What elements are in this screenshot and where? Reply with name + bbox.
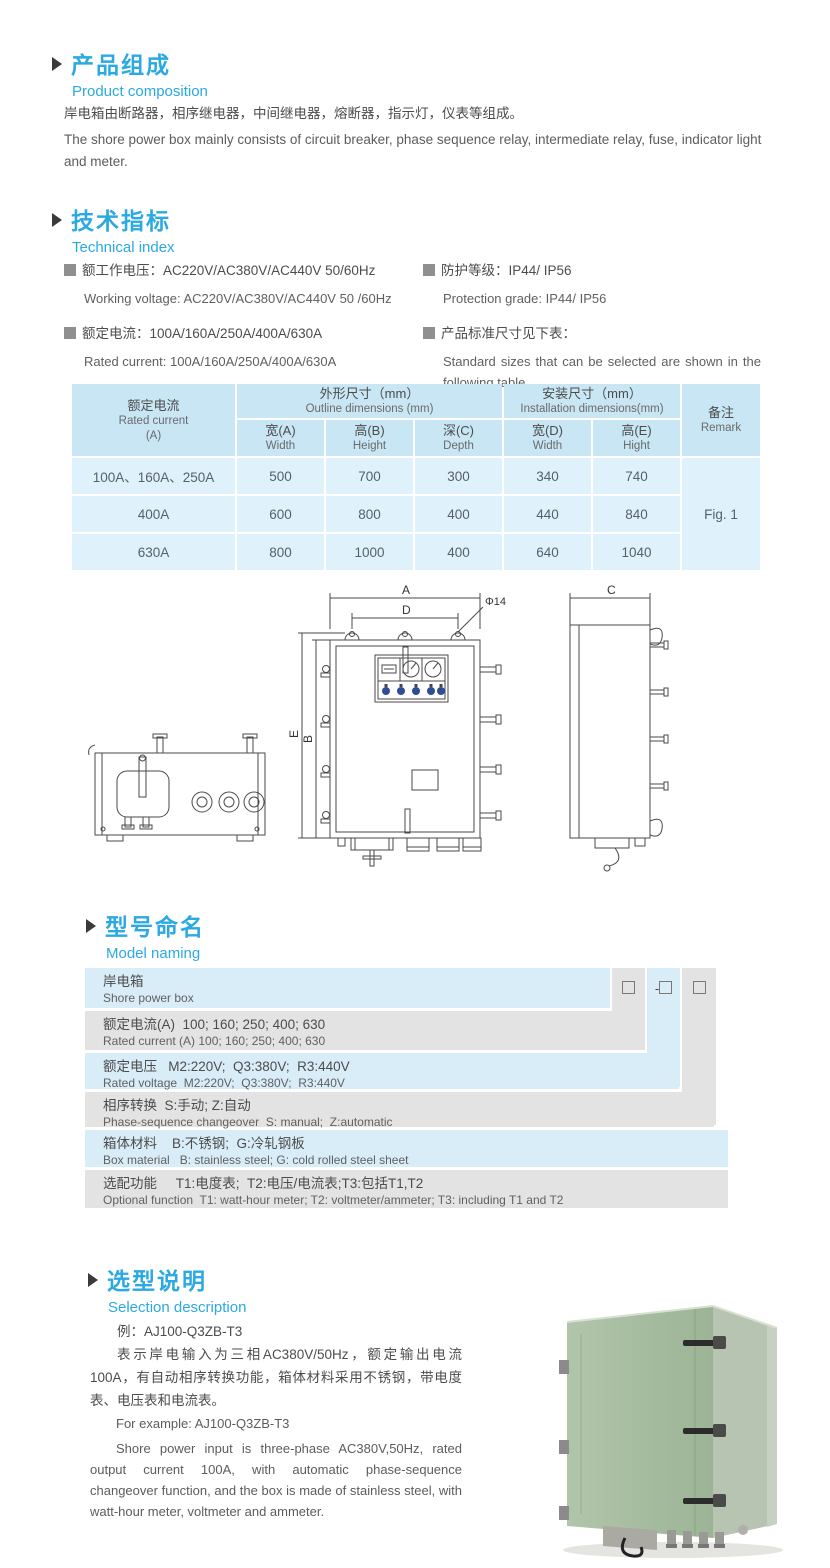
naming-line-en: Optional function T1: watt-hour meter; T… <box>103 1192 728 1208</box>
header-zh: 高(B) <box>326 422 413 439</box>
header-zh: 额定电流 <box>72 397 235 414</box>
cell-height: 700 <box>326 458 413 494</box>
cell-current: 100A、160A、250A <box>72 458 235 494</box>
subcol-header: 高(B)Height <box>326 420 413 456</box>
dim-label-e: E <box>287 730 301 738</box>
naming-row-optional-function: 选配功能 T1:电度表; T2:电压/电流表;T3:包括T1,T2 Option… <box>85 1170 728 1208</box>
cell-install-width: 440 <box>504 496 591 532</box>
section-selection-header: 选型说明 Selection description <box>88 1262 246 1316</box>
col-header-outline: 外形尺寸（mm） Outline dimensions (mm) <box>237 384 502 418</box>
selection-example-en: For example: AJ100-Q3ZB-T3 <box>90 1416 462 1431</box>
cell-install-width: 340 <box>504 458 591 494</box>
subcol-header: 高(E)Hight <box>593 420 680 456</box>
cell-install-height: 740 <box>593 458 680 494</box>
selection-example-zh: 例：AJ100-Q3ZB-T3 <box>90 1320 462 1340</box>
cell-install-height: 840 <box>593 496 680 532</box>
cell-width: 600 <box>237 496 324 532</box>
naming-row-phase-sequence: 相序转换 S:手动; Z:自动 Phase-sequence changeove… <box>85 1092 714 1127</box>
side-view-drawing <box>570 593 668 871</box>
section-arrow-icon <box>88 1273 98 1287</box>
naming-line-zh: 相序转换 S:手动; Z:自动 <box>103 1097 714 1114</box>
placeholder-box-icon <box>659 981 672 994</box>
naming-row-box-material: 箱体材料 B:不锈钢; G:冷轧钢板 Box material B: stain… <box>85 1130 728 1167</box>
square-bullet-icon <box>423 264 435 276</box>
section-arrow-icon <box>52 57 62 71</box>
section-technical-header: 技术指标 Technical index <box>52 202 175 256</box>
spec-item: 产品标准尺寸见下表： <box>423 322 753 342</box>
section-title-en: Selection description <box>108 1299 246 1316</box>
dim-label-phi14: Φ14 <box>485 596 506 608</box>
placeholder-box-icon <box>622 981 635 994</box>
cell-depth: 400 <box>415 534 502 570</box>
product-photo <box>545 1298 803 1563</box>
cabinet-side-highlight <box>767 1325 777 1527</box>
section-title-en: Product composition <box>72 83 208 100</box>
naming-row-rated-voltage: 额定电压 M2:220V; Q3:380V; R3:440V Rated vol… <box>85 1053 679 1089</box>
table-row: 630A 800 1000 400 640 1040 <box>72 534 760 570</box>
composition-paragraph-en: The shore power box mainly consists of c… <box>64 129 774 173</box>
header-zh: 外形尺寸（mm） <box>237 385 502 402</box>
col-header-installation: 安装尺寸（mm） Installation dimensions(mm) <box>504 384 680 418</box>
bottom-view-drawing <box>89 734 265 841</box>
section-title-zh: 技术指标 <box>71 208 171 234</box>
front-view-drawing <box>298 593 501 866</box>
spec-item: 额定电流：100A/160A/250A/400A/630A <box>64 322 426 342</box>
header-zh: 备注 <box>682 404 760 421</box>
cell-depth: 400 <box>415 496 502 532</box>
header-zh: 宽(D) <box>504 422 591 439</box>
header-zh: 深(C) <box>415 422 502 439</box>
dim-label-a: A <box>402 585 410 597</box>
spec-text-en: Protection grade: IP44/ IP56 <box>443 288 753 309</box>
header-en: Outline dimensions (mm) <box>237 402 502 417</box>
cell-height: 800 <box>326 496 413 532</box>
placeholder-box-icon <box>693 981 706 994</box>
cell-current: 400A <box>72 496 235 532</box>
header-en: Depth <box>415 439 502 454</box>
spec-item: 额工作电压：AC220V/AC380V/AC440V 50/60Hz <box>64 259 426 279</box>
header-en: Rated current <box>72 414 235 429</box>
naming-line-en: Box material B: stainless steel; G: cold… <box>103 1152 728 1168</box>
section-title-zh: 型号命名 <box>105 914 205 940</box>
header-zh: 宽(A) <box>237 422 324 439</box>
section-composition-header: 产品组成 Product composition <box>52 46 208 100</box>
selection-paragraph-zh: 表示岸电输入为三相AC380V/50Hz，额定输出电流100A，有自动相序转换功… <box>90 1343 462 1412</box>
table-row: 100A、160A、250A 500 700 300 340 740 Fig. … <box>72 458 760 494</box>
header-en: Hight <box>593 439 680 454</box>
header-en: Height <box>326 439 413 454</box>
cell-remark: Fig. 1 <box>682 458 760 570</box>
composition-paragraph-zh: 岸电箱由断路器，相序继电器，中间继电器，熔断器，指示灯，仪表等组成。 <box>64 103 774 125</box>
section-title-en: Model naming <box>106 945 205 962</box>
section-arrow-icon <box>52 213 62 227</box>
header-en: Remark <box>682 421 760 436</box>
dim-label-c: C <box>607 585 616 597</box>
col-header-remark: 备注 Remark <box>682 384 760 456</box>
spec-text-en: Rated current: 100A/160A/250A/400A/630A <box>84 351 426 372</box>
naming-line-en: Rated voltage M2:220V; Q3:380V; R3:440V <box>103 1075 679 1091</box>
catalog-page: 产品组成 Product composition 岸电箱由断路器，相序继电器，中… <box>0 0 830 1568</box>
section-title-zh: 产品组成 <box>71 52 171 78</box>
square-bullet-icon <box>64 264 76 276</box>
naming-line-zh: 选配功能 T1:电度表; T2:电压/电流表;T3:包括T1,T2 <box>103 1175 728 1192</box>
naming-line-en: Shore power box <box>103 990 610 1006</box>
cell-install-width: 640 <box>504 534 591 570</box>
spec-item: 防护等级：IP44/ IP56 <box>423 259 753 279</box>
table-row: 400A 600 800 400 440 840 <box>72 496 760 532</box>
header-unit: (A) <box>72 429 235 444</box>
cell-width: 500 <box>237 458 324 494</box>
header-zh: 高(E) <box>593 422 680 439</box>
square-bullet-icon <box>64 327 76 339</box>
naming-line-en: Phase-sequence changeover S: manual; Z:a… <box>103 1114 714 1130</box>
col-header-rated-current: 额定电流 Rated current (A) <box>72 384 235 456</box>
spec-text-zh: 防护等级：IP44/ IP56 <box>441 263 572 278</box>
section-title-en: Technical index <box>72 239 175 256</box>
naming-line-zh: 额定电流(A) 100; 160; 250; 400; 630 <box>103 1016 644 1033</box>
dim-label-b: B <box>301 735 315 743</box>
subcol-header: 宽(A)Width <box>237 420 324 456</box>
dim-label-d: D <box>402 603 411 617</box>
cell-height: 1000 <box>326 534 413 570</box>
header-zh: 安装尺寸（mm） <box>504 385 680 402</box>
indicator-lamps <box>382 684 445 695</box>
section-naming-header: 型号命名 Model naming <box>86 908 205 962</box>
naming-row-shore-power-box: 岸电箱 Shore power box <box>85 968 610 1008</box>
technical-drawings: A D Φ14 E B C <box>55 585 775 890</box>
header-en: Width <box>504 439 591 454</box>
cell-current: 630A <box>72 534 235 570</box>
header-en: Installation dimensions(mm) <box>504 402 680 417</box>
selection-paragraph-en: Shore power input is three-phase AC380V,… <box>90 1438 462 1522</box>
naming-line-zh: 岸电箱 <box>103 973 610 990</box>
naming-line-zh: 额定电压 M2:220V; Q3:380V; R3:440V <box>103 1058 679 1075</box>
spec-text-en: Working voltage: AC220V/AC380V/AC440V 50… <box>84 288 426 309</box>
naming-line-en: Rated current (A) 100; 160; 250; 400; 63… <box>103 1033 644 1049</box>
naming-row-rated-current: 额定电流(A) 100; 160; 250; 400; 630 Rated cu… <box>85 1011 644 1050</box>
section-arrow-icon <box>86 919 96 933</box>
cell-depth: 300 <box>415 458 502 494</box>
spec-text-zh: 额定电流：100A/160A/250A/400A/630A <box>82 326 322 341</box>
naming-line-zh: 箱体材料 B:不锈钢; G:冷轧钢板 <box>103 1135 728 1152</box>
spec-text-zh: 额工作电压：AC220V/AC380V/AC440V 50/60Hz <box>82 263 375 278</box>
cell-install-height: 1040 <box>593 534 680 570</box>
header-en: Width <box>237 439 324 454</box>
cell-width: 800 <box>237 534 324 570</box>
subcol-header: 深(C)Depth <box>415 420 502 456</box>
spec-column-left: 额工作电压：AC220V/AC380V/AC440V 50/60Hz Worki… <box>64 259 426 385</box>
spec-text-zh: 产品标准尺寸见下表： <box>441 326 576 341</box>
subcol-header: 宽(D)Width <box>504 420 591 456</box>
square-bullet-icon <box>423 327 435 339</box>
dimensions-table: 额定电流 Rated current (A) 外形尺寸（mm） Outline … <box>70 382 762 572</box>
section-title-zh: 选型说明 <box>107 1268 207 1294</box>
